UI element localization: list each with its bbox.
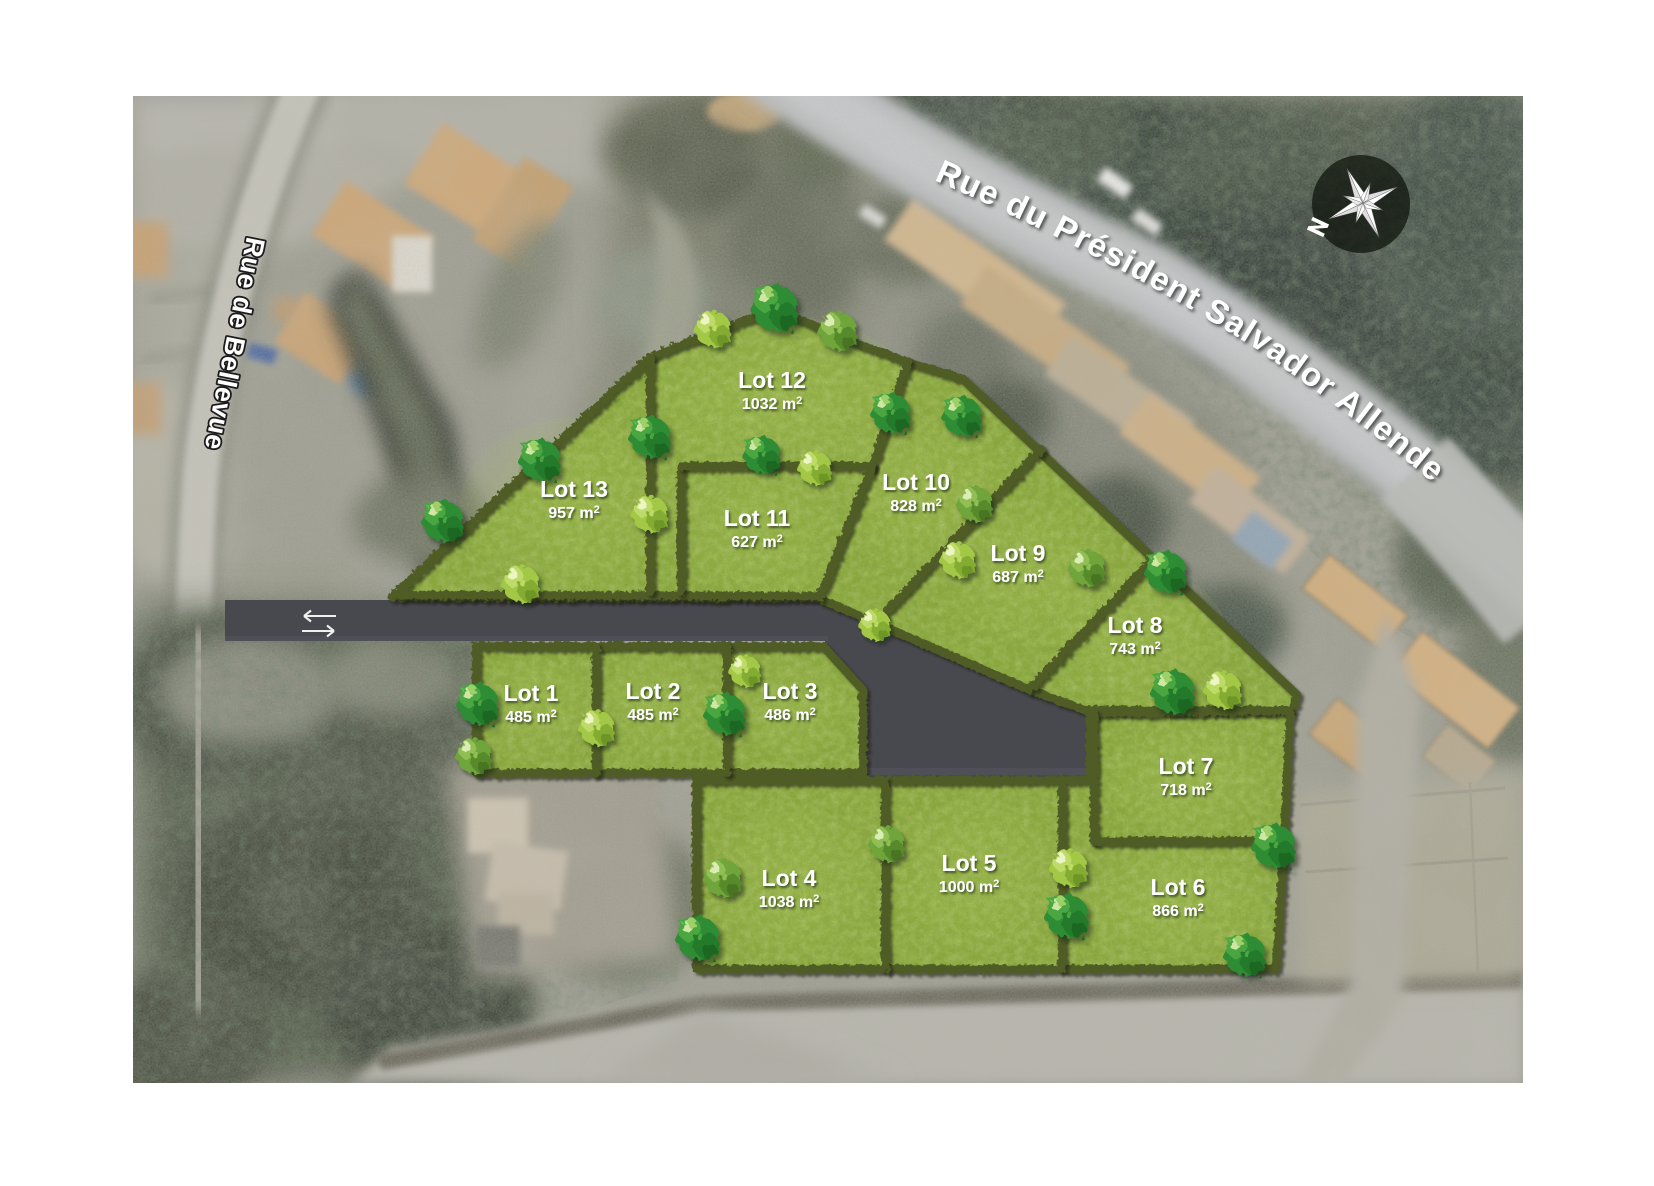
svg-text:Lot 11: Lot 11	[724, 505, 791, 531]
svg-text:1038 m2: 1038 m2	[759, 893, 819, 911]
svg-text:687 m2: 687 m2	[992, 568, 1044, 586]
svg-text:Lot 8: Lot 8	[1108, 612, 1163, 638]
svg-text:828 m2: 828 m2	[890, 497, 942, 515]
svg-text:Lot 2: Lot 2	[626, 678, 681, 704]
svg-text:485 m2: 485 m2	[627, 706, 679, 724]
svg-text:718 m2: 718 m2	[1160, 781, 1212, 799]
svg-text:Lot 1: Lot 1	[504, 680, 559, 706]
svg-text:743 m2: 743 m2	[1109, 640, 1161, 658]
svg-text:Lot 5: Lot 5	[942, 850, 997, 876]
svg-text:1000 m2: 1000 m2	[939, 878, 999, 896]
svg-text:Lot 9: Lot 9	[991, 540, 1046, 566]
svg-text:627 m2: 627 m2	[731, 533, 783, 551]
svg-text:957 m2: 957 m2	[548, 504, 600, 522]
svg-text:Lot 12: Lot 12	[738, 367, 806, 393]
svg-text:Lot 3: Lot 3	[763, 678, 818, 704]
svg-text:Lot 7: Lot 7	[1159, 753, 1214, 779]
svg-text:486 m2: 486 m2	[764, 706, 816, 724]
svg-text:866 m2: 866 m2	[1152, 902, 1204, 920]
svg-text:Lot 6: Lot 6	[1151, 874, 1206, 900]
svg-text:485 m2: 485 m2	[505, 708, 557, 726]
svg-text:1032 m2: 1032 m2	[742, 395, 802, 413]
svg-text:Lot 13: Lot 13	[540, 476, 608, 502]
svg-text:Lot 4: Lot 4	[762, 865, 817, 891]
svg-text:Lot 10: Lot 10	[882, 469, 950, 495]
